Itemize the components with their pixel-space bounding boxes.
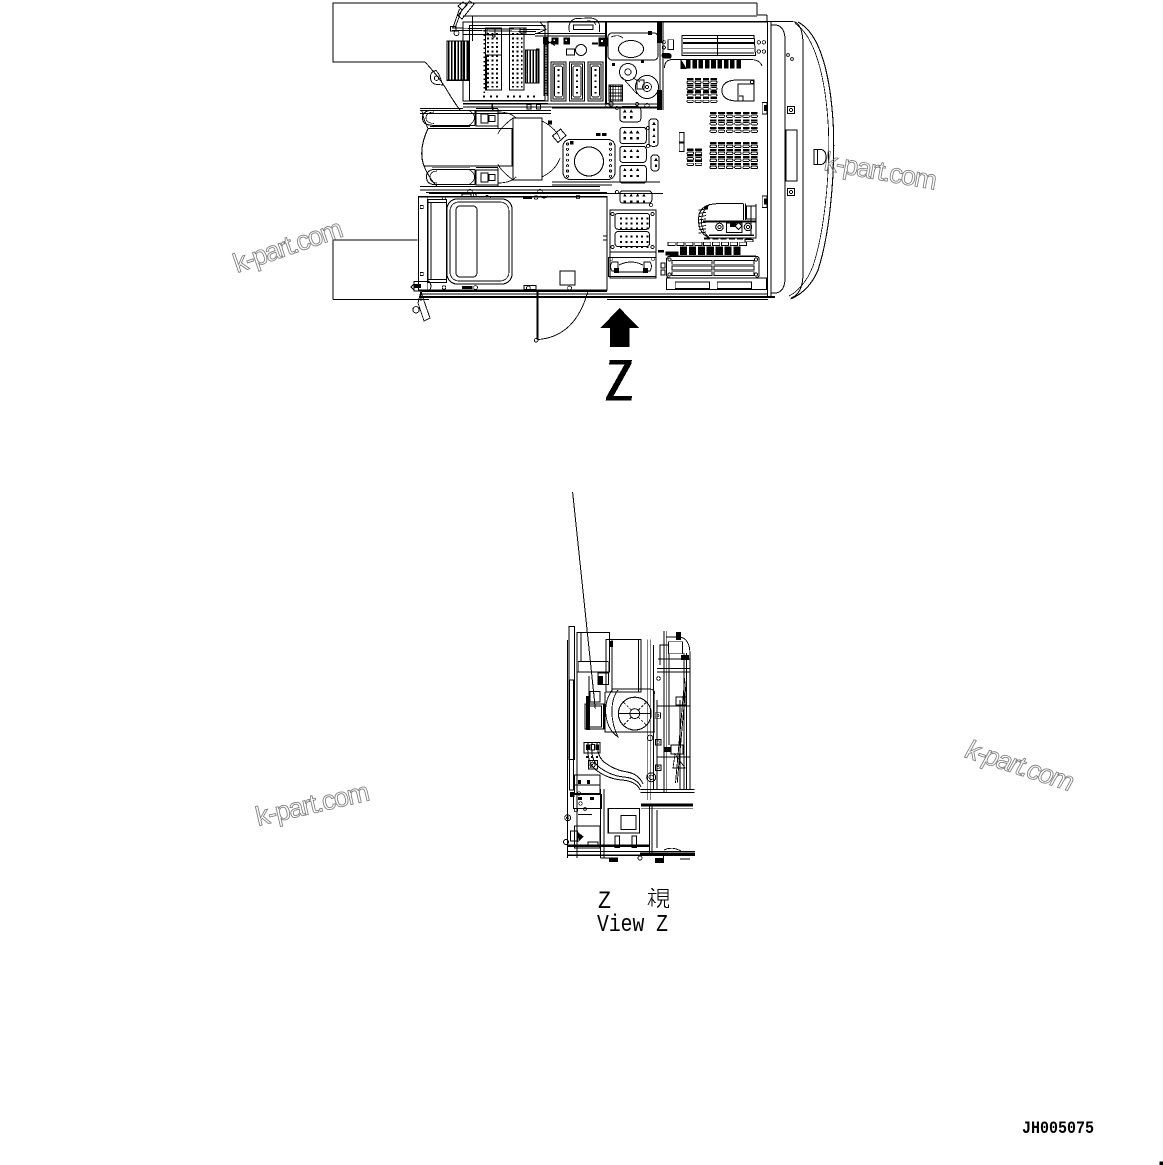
svg-text:JH005075: JH005075 — [1022, 1119, 1094, 1139]
svg-text:View Z: View Z — [597, 912, 668, 939]
